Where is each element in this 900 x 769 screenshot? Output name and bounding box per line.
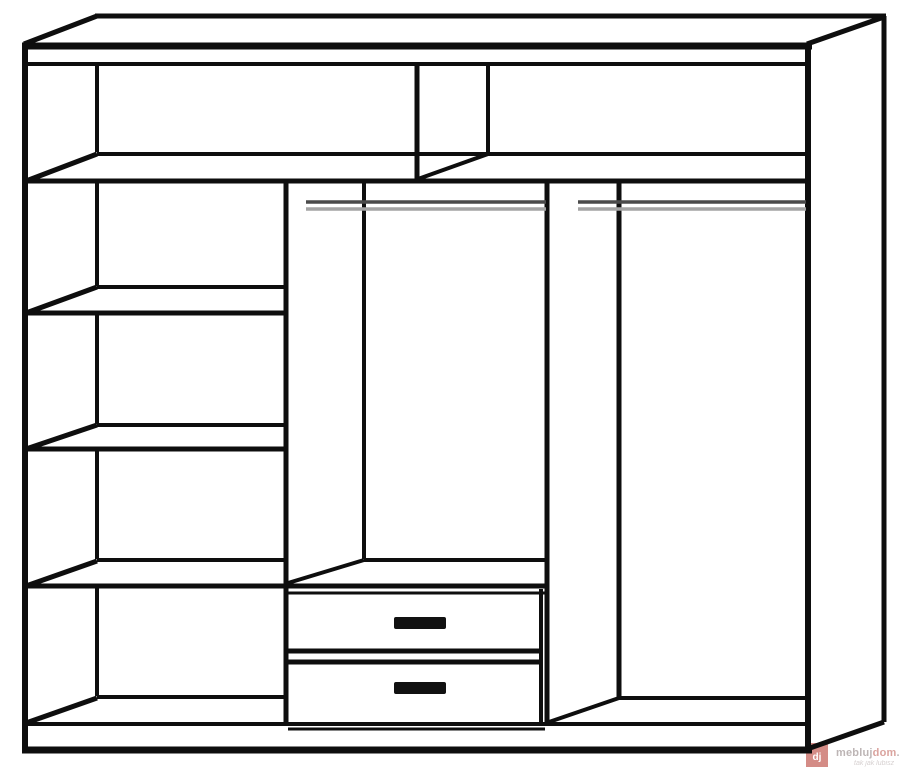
- watermark-brand: meblujdom.pl: [836, 747, 900, 759]
- watermark-logo-text: dj: [813, 752, 822, 763]
- shelf-3-left-diagonal: [26, 425, 97, 449]
- shelf-2-left-diagonal: [26, 287, 97, 313]
- watermark-tagline: tak jak lubisz: [854, 760, 895, 767]
- top-right-depth-diagonal: [807, 17, 884, 44]
- top-left-depth-diagonal: [24, 16, 97, 44]
- top-divider-bottom-diagonal: [418, 154, 488, 179]
- top-shelf-left-diagonal: [26, 154, 97, 181]
- watermark-brand-part-1: mebluj: [836, 747, 873, 759]
- drawer-handle-2: [394, 682, 446, 694]
- shelf-4-left-diagonal: [26, 561, 97, 586]
- drawer-handle-1: [394, 617, 446, 629]
- bottom-shelf-left-diagonal: [26, 698, 97, 723]
- watermark-brand-part-2: dom: [873, 747, 897, 759]
- partition-2-bottom-diagonal: [549, 698, 619, 722]
- wardrobe-linework: [22, 16, 886, 751]
- watermark: meblujdom.pl tak jak lubisz: [836, 747, 900, 767]
- bottom-right-depth-diagonal: [810, 722, 884, 748]
- watermark-brand-part-3: .pl: [896, 747, 900, 759]
- partition-1-bottom-diagonal: [288, 560, 364, 583]
- wardrobe-schematic-page: dj meblujdom.pl tak jak lubisz: [0, 0, 900, 769]
- wardrobe-diagram: dj meblujdom.pl tak jak lubisz: [0, 0, 900, 769]
